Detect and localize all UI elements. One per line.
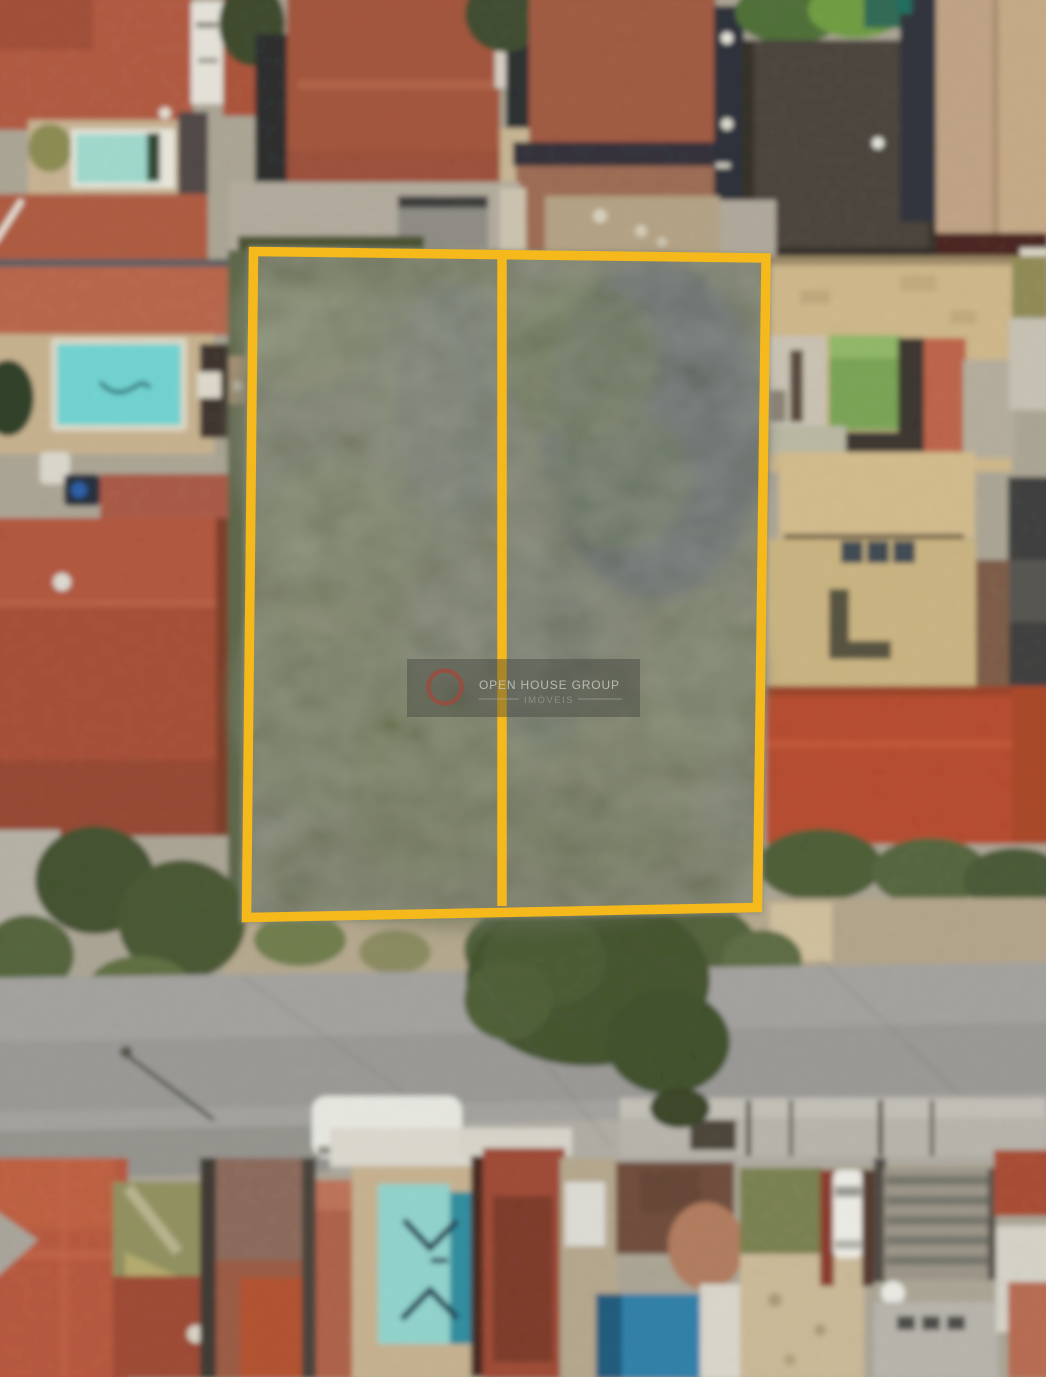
svg-text:IMÓVEIS: IMÓVEIS (524, 695, 574, 706)
svg-text:OPEN HOUSE GROUP: OPEN HOUSE GROUP (479, 678, 621, 692)
